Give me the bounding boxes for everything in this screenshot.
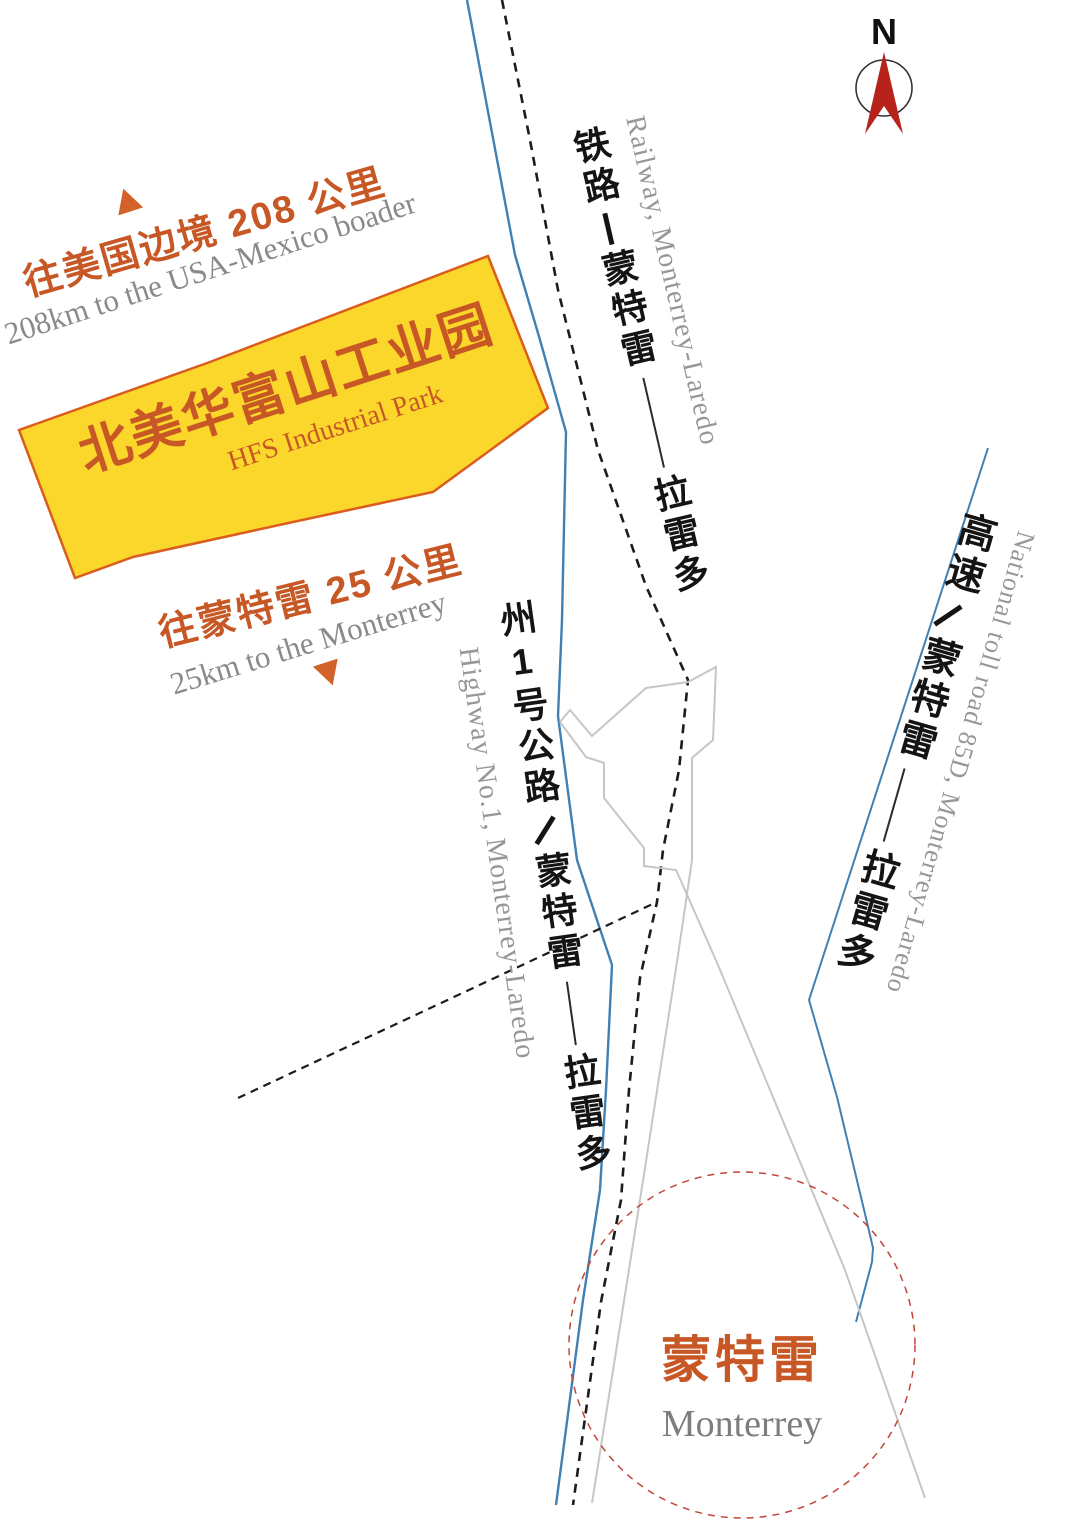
- compass-north-label: N: [838, 12, 930, 52]
- compass-north-arrow-icon: [838, 52, 930, 144]
- route-dash: [934, 605, 963, 627]
- route-connector-line: [642, 378, 665, 468]
- monterrey-city-label-en: Monterrey: [597, 1402, 887, 1446]
- monterrey-city-label-zh: 蒙特雷: [597, 1320, 887, 1392]
- location-map: N 往美国边境 208 公里 208km to the USA-Mexico b…: [0, 0, 1080, 1527]
- monterrey-city-label: 蒙特雷 Monterrey: [597, 1320, 887, 1446]
- route-dash: [535, 815, 556, 845]
- compass: N: [838, 12, 930, 149]
- route-connector-line: [883, 768, 906, 842]
- route-connector-line: [566, 982, 577, 1046]
- route-dash: [603, 213, 615, 245]
